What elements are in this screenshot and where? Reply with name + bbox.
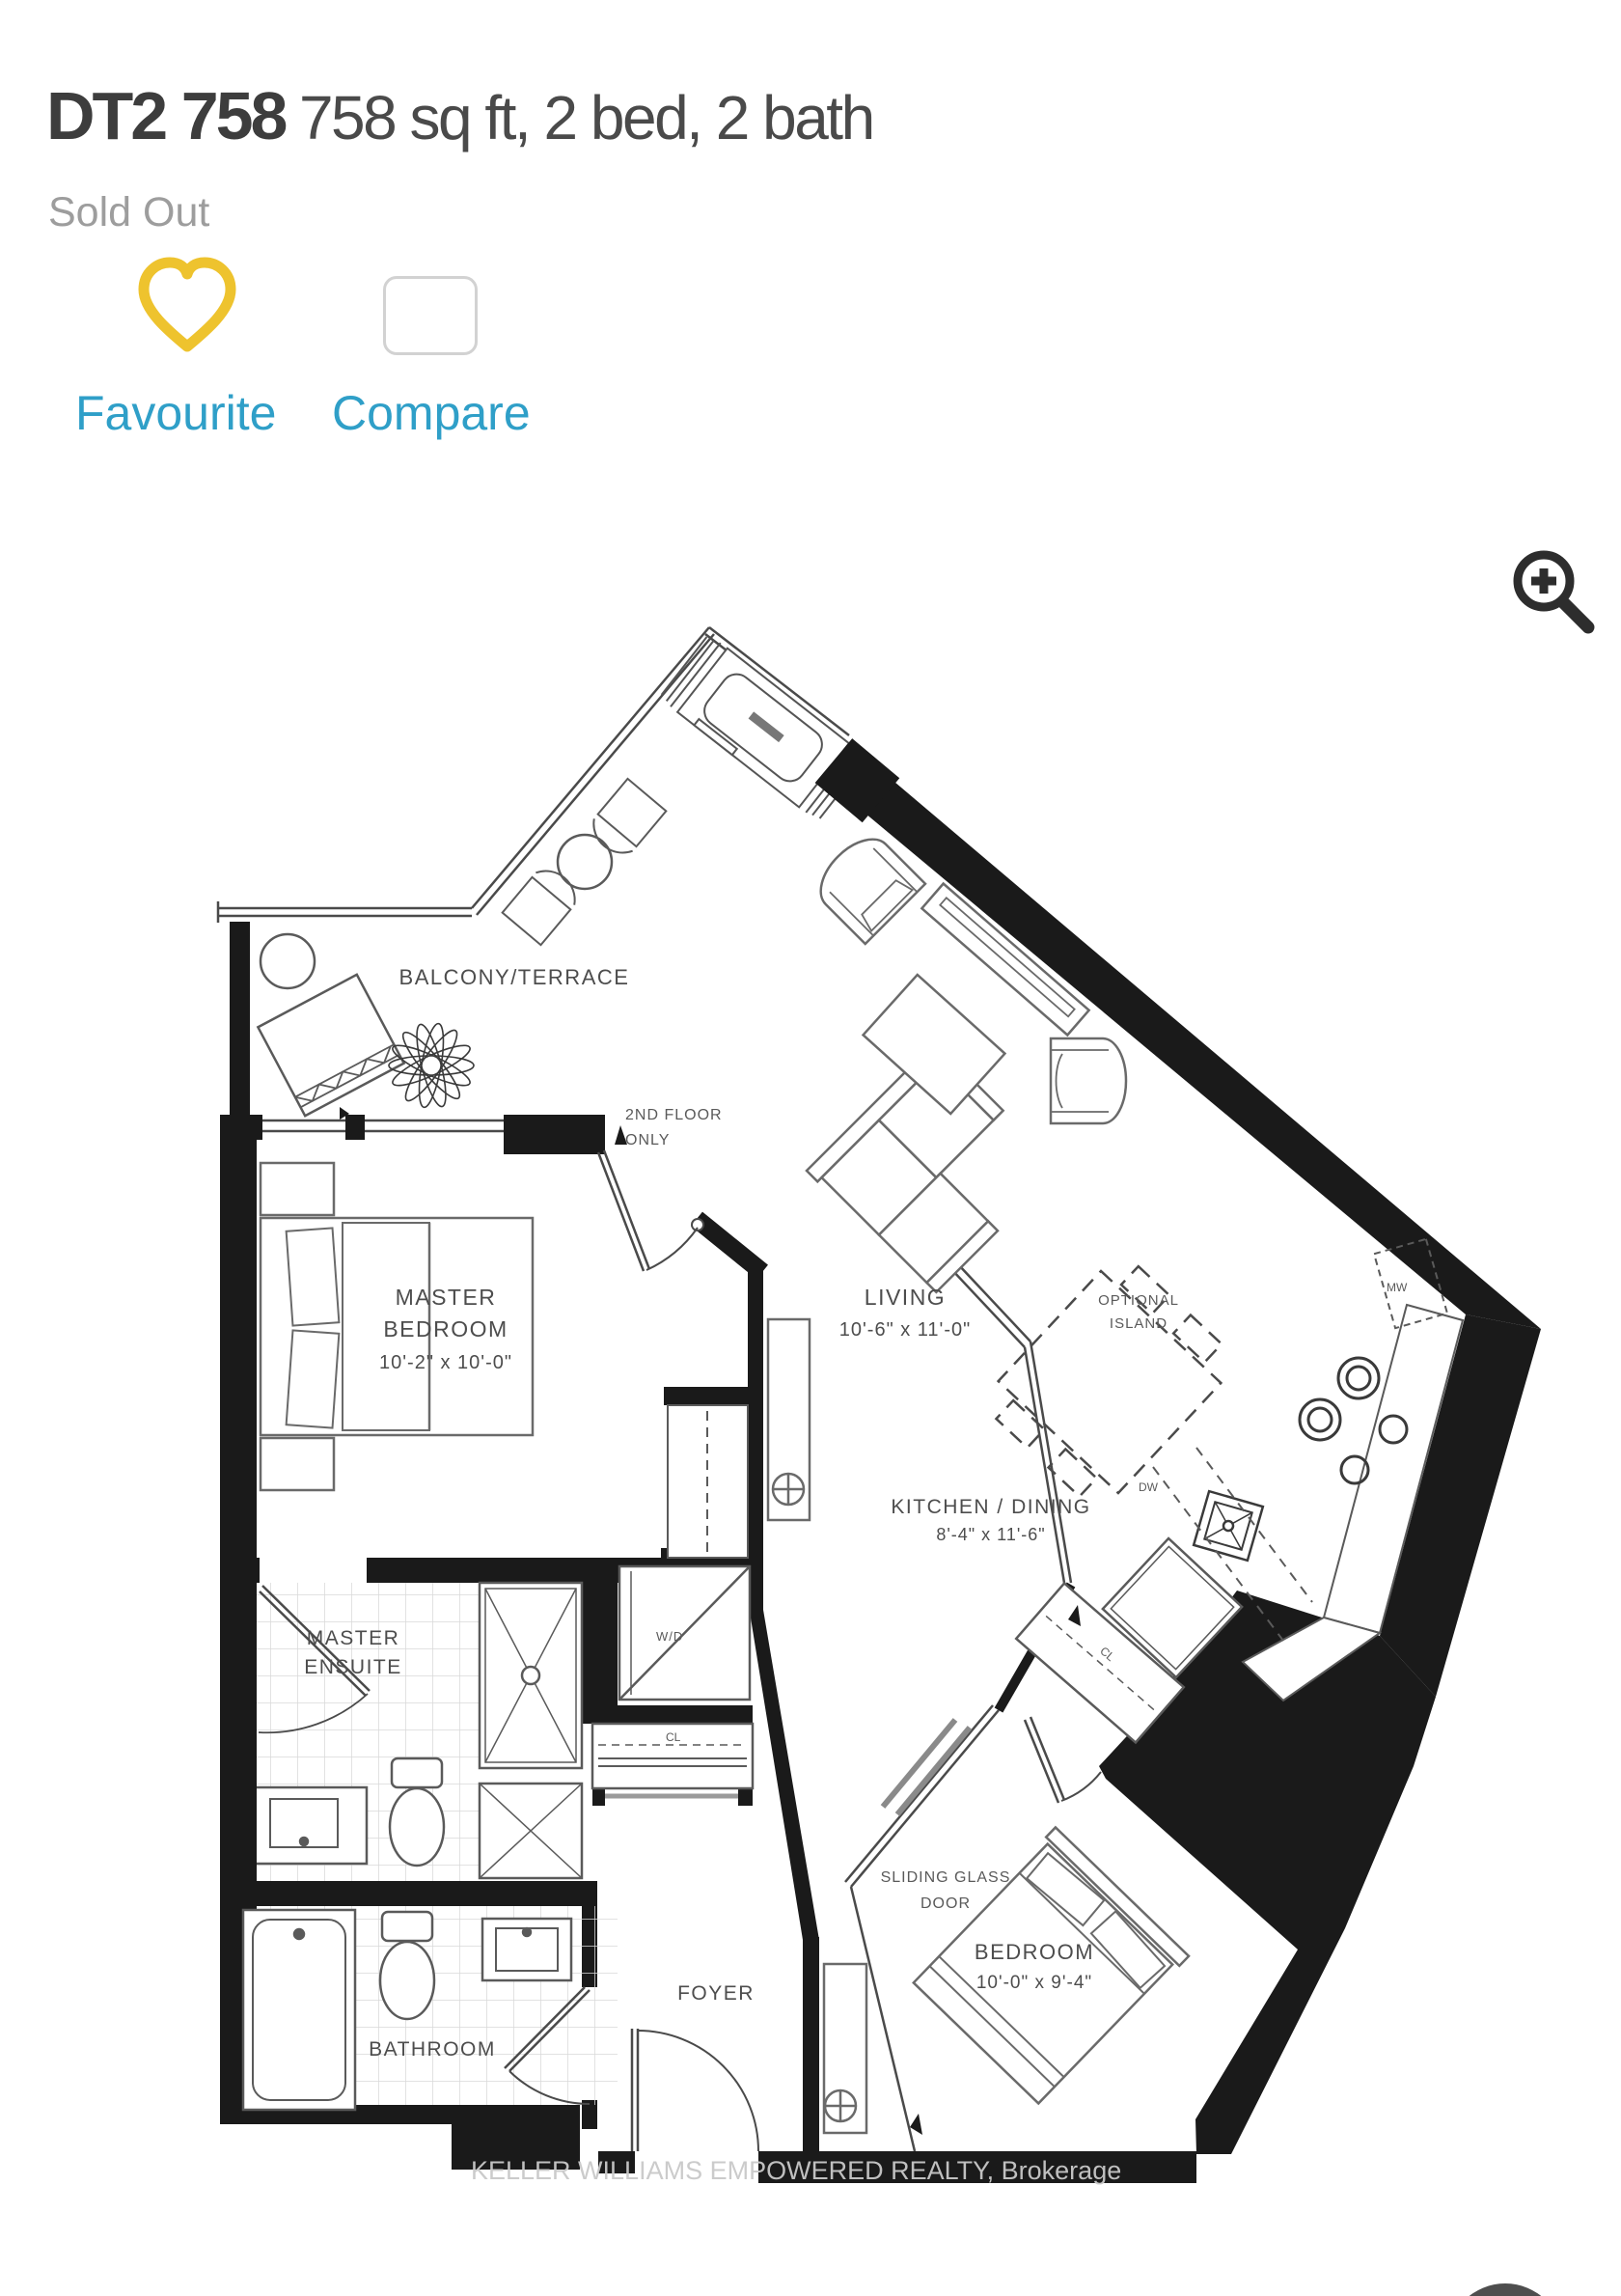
svg-text:ONLY: ONLY [625, 1132, 670, 1148]
svg-text:FOYER: FOYER [677, 1982, 755, 2005]
svg-text:ENSUITE: ENSUITE [304, 1656, 402, 1678]
svg-text:10'-2" x 10'-0": 10'-2" x 10'-0" [379, 1352, 512, 1373]
svg-text:10'-0" x 9'-4": 10'-0" x 9'-4" [976, 1973, 1092, 1993]
svg-text:ISLAND: ISLAND [1110, 1315, 1168, 1332]
svg-text:KITCHEN / DINING: KITCHEN / DINING [891, 1496, 1090, 1518]
svg-text:DW: DW [1139, 1480, 1159, 1494]
svg-text:CL: CL [666, 1730, 681, 1744]
svg-text:8'-4" x 11'-6": 8'-4" x 11'-6" [936, 1525, 1045, 1544]
svg-text:W/D: W/D [656, 1629, 683, 1644]
svg-text:DOOR: DOOR [920, 1895, 971, 1912]
svg-text:LIVING: LIVING [865, 1285, 946, 1310]
svg-text:BALCONY/TERRACE: BALCONY/TERRACE [399, 965, 630, 989]
svg-text:BATHROOM: BATHROOM [369, 2038, 496, 2061]
svg-text:2ND FLOOR: 2ND FLOOR [625, 1107, 723, 1123]
svg-text:BEDROOM: BEDROOM [975, 1940, 1094, 1964]
svg-text:OPTIONAL: OPTIONAL [1098, 1292, 1179, 1309]
svg-text:10'-6" x 11'-0": 10'-6" x 11'-0" [839, 1319, 972, 1341]
svg-text:SLIDING GLASS: SLIDING GLASS [881, 1869, 1011, 1886]
svg-text:KELLER WILLIAMS EMPOWERED REAL: KELLER WILLIAMS EMPOWERED REALTY, Broker… [471, 2156, 1121, 2185]
svg-text:MW: MW [1387, 1281, 1408, 1294]
svg-text:BEDROOM: BEDROOM [383, 1316, 508, 1342]
svg-text:MASTER: MASTER [396, 1285, 497, 1310]
svg-text:MASTER: MASTER [307, 1627, 400, 1649]
